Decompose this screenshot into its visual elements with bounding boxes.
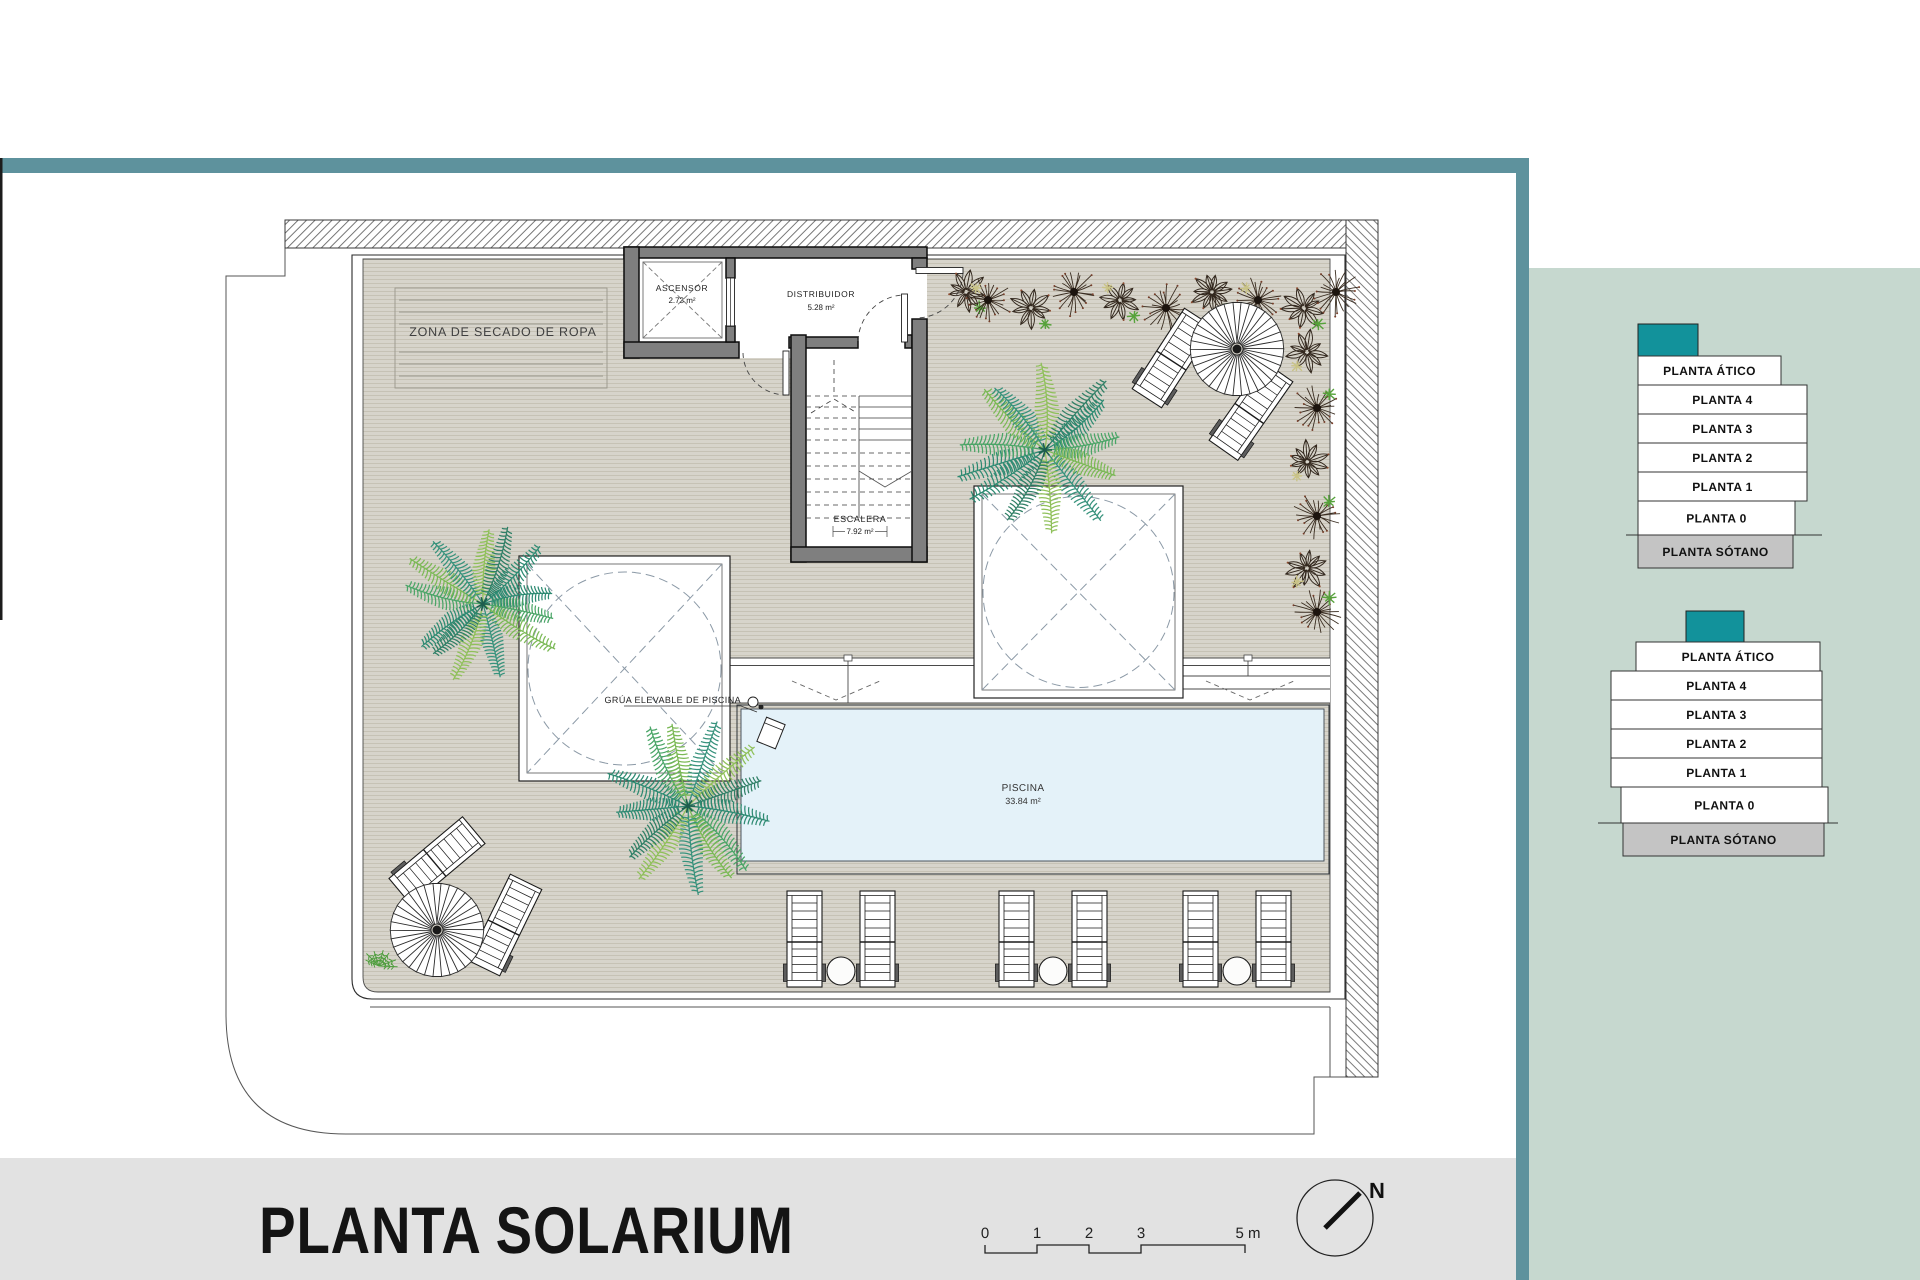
svg-text:3: 3	[1137, 1225, 1145, 1242]
svg-text:5.28 m²: 5.28 m²	[807, 303, 834, 312]
svg-text:PLANTA SÓTANO: PLANTA SÓTANO	[1670, 833, 1776, 847]
svg-text:0: 0	[981, 1225, 989, 1242]
svg-text:PLANTA 0: PLANTA 0	[1694, 799, 1755, 813]
svg-text:PLANTA 4: PLANTA 4	[1692, 393, 1753, 407]
svg-text:2: 2	[1085, 1225, 1093, 1242]
svg-text:PLANTA 3: PLANTA 3	[1692, 422, 1753, 436]
svg-text:PLANTA 1: PLANTA 1	[1692, 480, 1753, 494]
svg-text:PLANTA 0: PLANTA 0	[1686, 512, 1747, 526]
svg-text:DISTRIBUIDOR: DISTRIBUIDOR	[787, 289, 855, 299]
svg-text:PLANTA SÓTANO: PLANTA SÓTANO	[1662, 545, 1768, 559]
svg-text:7.92 m²: 7.92 m²	[846, 527, 873, 536]
svg-text:PLANTA ÁTICO: PLANTA ÁTICO	[1682, 650, 1775, 664]
svg-text:N: N	[1369, 1178, 1385, 1203]
svg-text:ESCALERA: ESCALERA	[834, 514, 887, 524]
svg-text:PISCINA: PISCINA	[1002, 783, 1045, 794]
svg-text:PLANTA 3: PLANTA 3	[1686, 708, 1747, 722]
svg-text:5 m: 5 m	[1235, 1225, 1260, 1242]
svg-text:ASCENSOR: ASCENSOR	[656, 283, 709, 293]
svg-text:33.84 m²: 33.84 m²	[1005, 796, 1041, 806]
svg-text:PLANTA SOLARIUM: PLANTA SOLARIUM	[259, 1193, 794, 1267]
svg-text:PLANTA 4: PLANTA 4	[1686, 679, 1747, 693]
svg-text:2.73 m²: 2.73 m²	[668, 296, 695, 305]
svg-text:ZONA DE SECADO DE ROPA: ZONA DE SECADO DE ROPA	[409, 325, 597, 339]
svg-text:PLANTA 2: PLANTA 2	[1692, 451, 1753, 465]
svg-text:PLANTA ÁTICO: PLANTA ÁTICO	[1663, 364, 1756, 378]
svg-text:1: 1	[1033, 1225, 1041, 1242]
svg-text:PLANTA 1: PLANTA 1	[1686, 766, 1747, 780]
svg-text:PLANTA 2: PLANTA 2	[1686, 737, 1747, 751]
svg-text:GRÚA ELEVABLE DE PISCINA: GRÚA ELEVABLE DE PISCINA	[605, 695, 741, 705]
